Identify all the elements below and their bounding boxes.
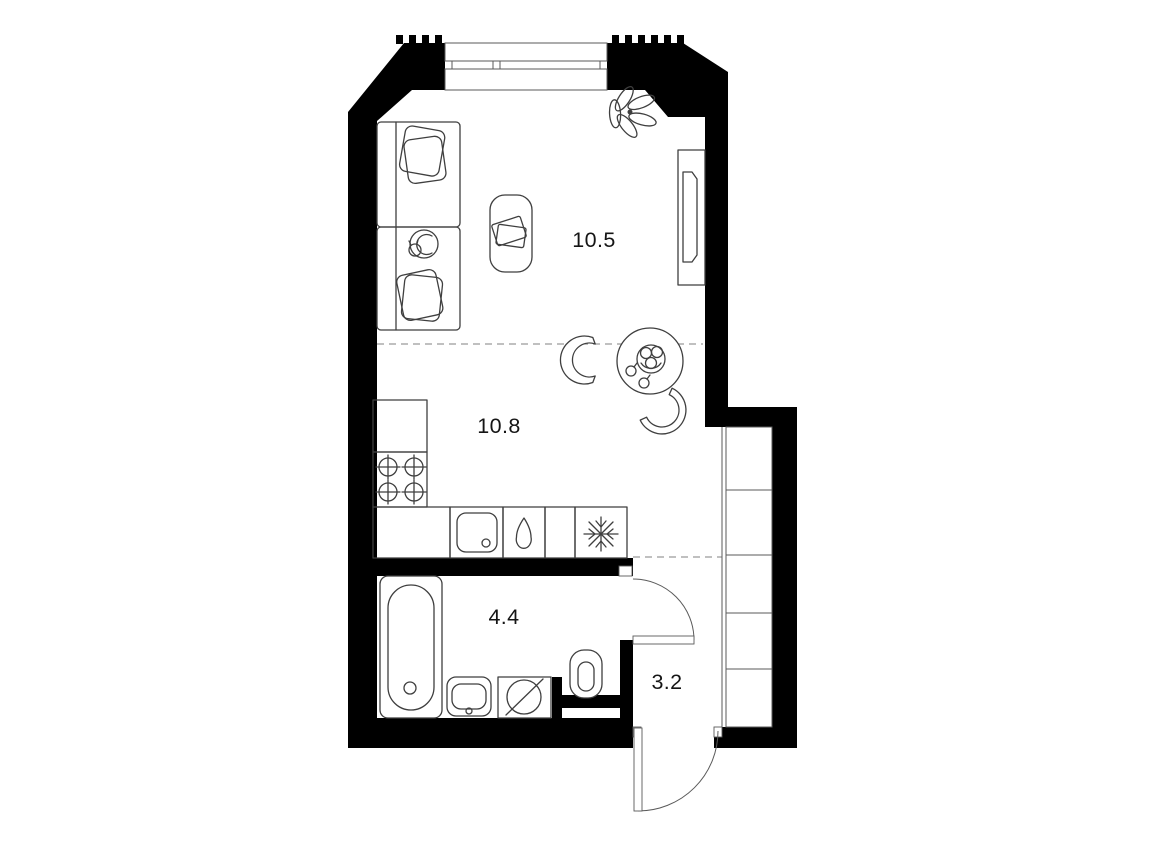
tv-console-icon xyxy=(678,150,705,285)
door-swing-icon xyxy=(633,579,694,640)
kitchen-sink-icon xyxy=(450,507,503,558)
living-area-label: 10.5 xyxy=(572,228,615,252)
pillow-icon xyxy=(398,125,445,177)
washing-machine-icon xyxy=(498,677,551,718)
bathroom-area-label: 4.4 xyxy=(488,605,519,629)
door-jamb xyxy=(619,566,632,576)
pouf-with-books-icon xyxy=(490,195,532,272)
stove-burners-icon xyxy=(373,452,427,507)
bed-icon xyxy=(377,122,460,330)
dining-table-icon xyxy=(560,328,685,434)
counter-icon xyxy=(373,400,427,452)
room-kitchen: 10.8 xyxy=(373,400,627,558)
door-leaf xyxy=(634,728,642,811)
room-living: 10.5 xyxy=(377,84,705,330)
door-swing-icon xyxy=(638,731,718,811)
facade-teeth-left xyxy=(396,35,442,44)
cat-icon xyxy=(409,230,438,258)
kitchen-area-label: 10.8 xyxy=(477,414,520,438)
room-hallway: 3.2 xyxy=(651,427,772,727)
bathtub-icon xyxy=(380,576,442,718)
floor-plan-page: 10.5 xyxy=(0,0,1150,863)
chair-icon xyxy=(560,336,595,384)
floor-plan-svg: 10.5 xyxy=(0,0,1150,863)
washbasin-icon xyxy=(447,677,491,716)
fridge-snowflake-icon xyxy=(575,507,627,558)
entrance-door xyxy=(633,727,722,811)
facade-teeth-right xyxy=(612,35,684,44)
counter-icon xyxy=(545,507,575,558)
window-icon xyxy=(445,43,607,90)
hallway-area-label: 3.2 xyxy=(651,670,682,694)
toilet-icon xyxy=(570,650,602,698)
bathroom-door xyxy=(619,566,694,644)
water-drop-icon xyxy=(503,507,545,558)
door-leaf xyxy=(633,636,694,644)
counter-icon xyxy=(373,507,450,558)
wardrobe-shelves-icon xyxy=(722,427,772,727)
chair-icon xyxy=(640,388,686,434)
